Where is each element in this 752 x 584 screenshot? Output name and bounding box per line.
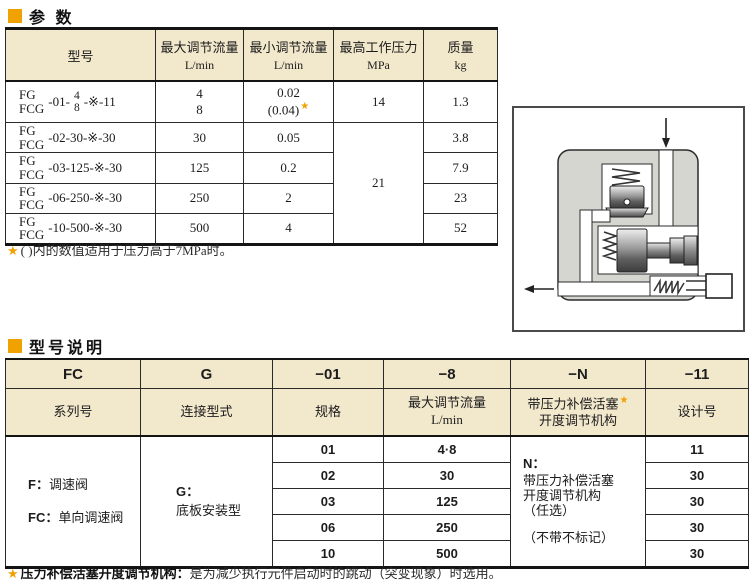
cell-compensator-desc: N： 带压力补偿活塞 开度调节机构 （任选） （不带不标记） — [511, 436, 646, 568]
cell-size: 06 — [273, 515, 384, 541]
cell-connection-desc: G： 底板安装型 — [141, 436, 273, 568]
cell-mass: 23 — [424, 183, 498, 213]
star-icon: ★ — [7, 566, 19, 581]
parameters-section-title: 参 数 — [8, 4, 74, 28]
col-header-max-flow: 最大调节流量 L/min — [156, 29, 244, 82]
cell-flow: 4·8 — [384, 436, 511, 463]
cell-size: 02 — [273, 463, 384, 489]
label-connection: 连接型式 — [141, 389, 273, 437]
code-fc: FC — [6, 359, 141, 389]
col-header-pressure: 最高工作压力 MPa — [334, 29, 424, 82]
cell-min-flow: 0.05 — [244, 123, 334, 153]
code-n: −N — [511, 359, 646, 389]
spool-shaft — [647, 243, 670, 258]
cell-mass: 52 — [424, 213, 498, 244]
outlet-channel — [558, 282, 650, 296]
cell-pressure: 14 — [334, 81, 424, 123]
label-design: 设计号 — [646, 389, 749, 437]
code-g: G — [141, 359, 273, 389]
spool-end — [684, 236, 697, 265]
model-code-table: FC G −01 −8 −N −11 系列号 连接型式 规格 最大调节流量 L/… — [5, 358, 749, 569]
star-icon: ★ — [620, 395, 629, 406]
params-footnote: ★( )内的数值适用于压力高于7MPa时。 — [7, 240, 233, 259]
cell-design: 30 — [646, 463, 749, 489]
cell-min-flow: 0.02 (0.04)★ — [244, 81, 334, 123]
cell-design: 30 — [646, 489, 749, 515]
star-icon: ★ — [300, 101, 309, 112]
code-01: −01 — [273, 359, 384, 389]
model-section-title: 型号说明 — [8, 334, 105, 358]
cell-model: FG FCG -03-125-※-30 — [6, 153, 156, 183]
label-size: 规格 — [273, 389, 384, 437]
label-compensator: 带压力补偿活塞★ 开度调节机构 — [511, 389, 646, 437]
cell-mass: 7.9 — [424, 153, 498, 183]
cell-design: 11 — [646, 436, 749, 463]
valve-cross-section-diagram — [512, 106, 745, 332]
poppet-orifice — [624, 199, 630, 205]
cell-mass: 1.3 — [424, 81, 498, 123]
spool-piston — [617, 229, 647, 272]
col-header-mass: 质量 kg — [424, 29, 498, 82]
label-series: 系列号 — [6, 389, 141, 437]
code-11: −11 — [646, 359, 749, 389]
cell-flow: 125 — [384, 489, 511, 515]
cell-max-flow: 125 — [156, 153, 244, 183]
model-footnote: ★压力补偿活塞开度调节机构：是为减少执行元件启动时的跳动（突变现象）时选用。 — [7, 563, 502, 582]
left-channel — [580, 210, 592, 282]
catalog-page: 参 数 型号 最大调节流量 L/min 最小调节流量 L/min — [0, 0, 752, 584]
col-header-min-flow: 最小调节流量 L/min — [244, 29, 334, 82]
flow-fraction: 4 8 — [74, 90, 80, 114]
inlet-channel — [659, 150, 673, 230]
table-row: FG FCG -06-250-※-30 250 2 23 — [6, 183, 498, 213]
cell-flow: 250 — [384, 515, 511, 541]
cell-max-flow: 4 8 — [156, 81, 244, 123]
cell-series-desc: F：调速阀 FC：单向调速阀 — [6, 436, 141, 568]
cell-flow: 30 — [384, 463, 511, 489]
cell-max-flow: 250 — [156, 183, 244, 213]
cell-mass: 3.8 — [424, 123, 498, 153]
cell-design: 30 — [646, 515, 749, 541]
spool-collar — [670, 238, 684, 263]
star-icon: ★ — [7, 243, 19, 258]
cell-min-flow: 0.2 — [244, 153, 334, 183]
table-row: FG FCG -01- 4 8 -※-11 4 8 0.02 (0.04)★ 1… — [6, 81, 498, 123]
outlet-arrow-icon — [524, 285, 554, 293]
orange-square-bullet-icon — [8, 339, 22, 353]
cell-pressure-merged: 21 — [334, 123, 424, 245]
poppet-seat — [606, 208, 648, 217]
cell-design: 30 — [646, 541, 749, 568]
table-row: FG FCG -02-30-※-30 30 0.05 21 3.8 — [6, 123, 498, 153]
section-title-text: 型号说明 — [29, 334, 105, 358]
cell-model: FG FCG -06-250-※-30 — [6, 183, 156, 213]
col-header-model: 型号 — [6, 29, 156, 82]
parameters-table: 型号 最大调节流量 L/min 最小调节流量 L/min 最高工作压力 MPa … — [5, 27, 498, 246]
inlet-arrow-icon — [662, 118, 670, 148]
cell-size: 03 — [273, 489, 384, 515]
code-8: −8 — [384, 359, 511, 389]
label-flow: 最大调节流量 L/min — [384, 389, 511, 437]
cell-model: FG FCG -01- 4 8 -※-11 — [6, 81, 156, 123]
section-title-text: 参 数 — [29, 4, 74, 28]
adjuster-knob — [706, 274, 732, 298]
table-row: FG FCG -03-125-※-30 125 0.2 7.9 — [6, 153, 498, 183]
table-row: F：调速阀 FC：单向调速阀 G： 底板安装型 01 4·8 N： 带压力补偿活… — [6, 436, 749, 463]
cell-size: 01 — [273, 436, 384, 463]
cell-min-flow: 4 — [244, 213, 334, 244]
cell-max-flow: 30 — [156, 123, 244, 153]
cell-model: FG FCG -02-30-※-30 — [6, 123, 156, 153]
cell-min-flow: 2 — [244, 183, 334, 213]
orange-square-bullet-icon — [8, 9, 22, 23]
valve-diagram-svg — [514, 108, 743, 330]
